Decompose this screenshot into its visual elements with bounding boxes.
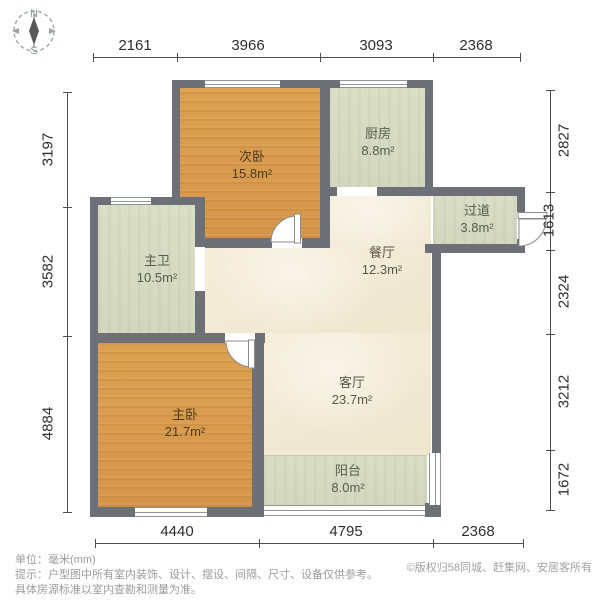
label-secondary-bedroom: 次卧 15.8m² (232, 149, 272, 183)
room-area: 15.8m² (232, 166, 272, 183)
label-master-bedroom: 主卧 21.7m² (165, 407, 205, 441)
label-kitchen: 厨房 8.8m² (361, 126, 394, 160)
dim-tick (523, 539, 524, 548)
dim-right-3: 2324 (556, 260, 573, 324)
room-name: 厨房 (361, 126, 394, 143)
room-area: 10.5m² (137, 270, 177, 287)
footer-unit-line: 单位：毫米(mm) (15, 551, 96, 567)
dim-tick (93, 53, 94, 62)
dim-tick (546, 334, 555, 335)
label-hallway: 过道 3.8m² (460, 203, 493, 237)
dim-right-2: 1613 (541, 189, 558, 253)
dim-tick (433, 53, 434, 62)
room-area: 21.7m² (165, 424, 205, 441)
label-balcony: 阳台 8.0m² (331, 463, 364, 497)
footer-tip-line1: 提示：户型图中所有室内装饰、设计、摆设、间隔、尺寸、设备仅供参考。 (15, 566, 378, 582)
dim-left-1: 3197 (40, 118, 57, 182)
dim-line-right (550, 90, 551, 510)
dim-tick (95, 539, 96, 548)
dim-tick (63, 207, 72, 208)
room-area: 23.7m² (332, 392, 372, 409)
dim-line-left (67, 92, 68, 512)
door-secondary-bedroom (271, 214, 301, 243)
dim-tick (177, 53, 178, 62)
door-arcs (0, 0, 600, 600)
dim-tick (320, 53, 321, 62)
door-master-bedroom (226, 340, 255, 368)
dim-tick (546, 450, 555, 451)
dim-tick (520, 53, 521, 62)
dim-top-4: 2368 (444, 37, 508, 54)
dim-tick (63, 336, 72, 337)
footer-copyright: ©版权归58同城、赶集网、安居客所有 (407, 559, 592, 575)
dim-tick (63, 512, 72, 513)
label-master-bathroom: 主卫 10.5m² (137, 253, 177, 287)
dim-top-3: 3093 (344, 37, 408, 54)
dim-left-2: 3582 (40, 240, 57, 304)
dim-bottom-3: 2368 (446, 523, 510, 540)
dim-top-2: 3966 (216, 37, 280, 54)
label-living-room: 客厅 23.7m² (332, 375, 372, 409)
dim-tick (546, 510, 555, 511)
room-area: 8.8m² (361, 143, 394, 160)
room-area: 12.3m² (362, 262, 402, 279)
room-name: 主卧 (165, 407, 205, 424)
dim-tick (546, 90, 555, 91)
dim-right-5: 1672 (556, 448, 573, 512)
dim-line-top (93, 57, 520, 58)
label-dining-room: 餐厅 12.3m² (362, 245, 402, 279)
footer-tip-line2: 具体房源标准以室内查勘和测量为准。 (15, 581, 202, 597)
room-area: 3.8m² (460, 220, 493, 237)
floorplan-canvas: N S (0, 0, 600, 600)
dim-right-1: 2827 (556, 109, 573, 173)
room-name: 餐厅 (362, 245, 402, 262)
dim-line-bottom (95, 543, 523, 544)
dim-left-3: 4884 (40, 392, 57, 456)
dim-bottom-2: 4795 (314, 523, 378, 540)
dim-top-1: 2161 (103, 37, 167, 54)
room-name: 客厅 (332, 375, 372, 392)
room-name: 阳台 (331, 463, 364, 480)
room-name: 次卧 (232, 149, 272, 166)
room-name: 主卫 (137, 253, 177, 270)
dim-tick (433, 539, 434, 548)
dim-tick (63, 92, 72, 93)
dim-bottom-1: 4440 (145, 523, 209, 540)
dim-right-4: 3212 (556, 360, 573, 424)
room-area: 8.0m² (331, 480, 364, 497)
dim-tick (259, 539, 260, 548)
room-name: 过道 (460, 203, 493, 220)
